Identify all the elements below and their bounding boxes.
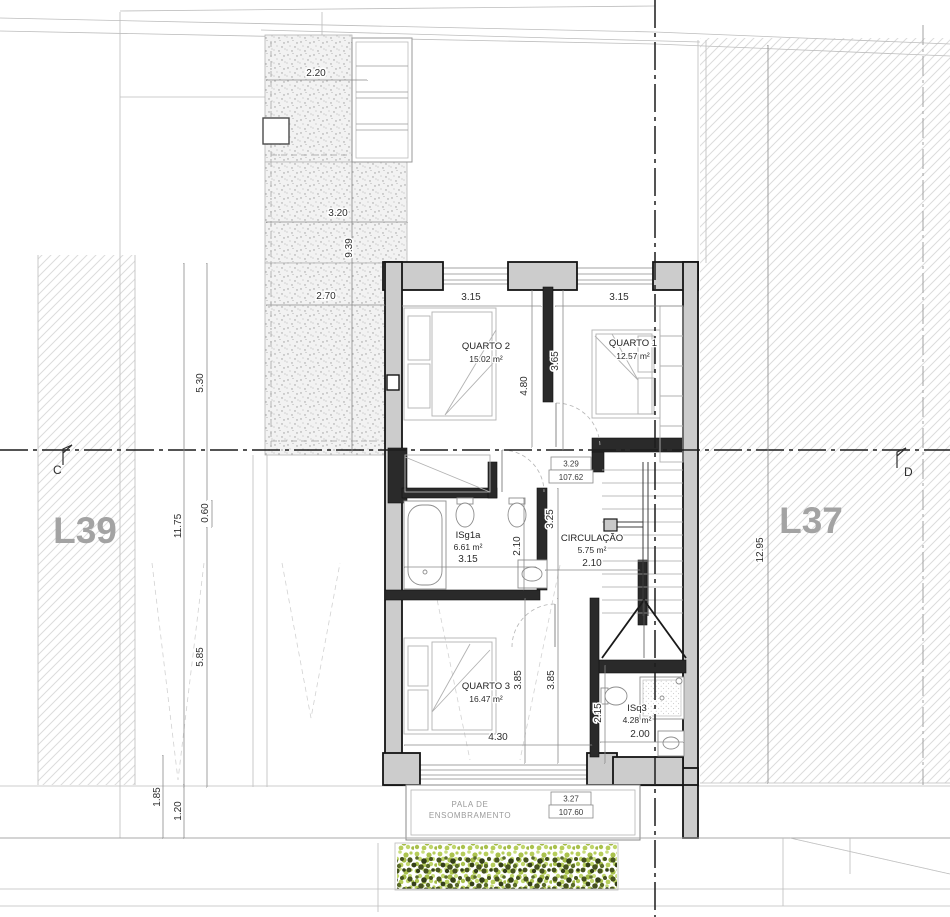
dim-isg1a-depth: 2.10 (512, 536, 523, 556)
dim-quarto2-depth: 4.80 (519, 376, 530, 396)
dim-quarto3-depth-right: 3.85 (546, 670, 557, 690)
canopy-label-line1: PALA DE (452, 800, 489, 809)
neighbor-lot-right-hatch (700, 38, 950, 783)
room-label-isq3: ISq3 (627, 703, 647, 714)
dim-rear-setback-b: 1.20 (173, 801, 184, 821)
canopy-label-line2: ENSOMBRAMENTO (429, 811, 511, 820)
dim-quarto3-width: 4.30 (488, 732, 508, 743)
dim-quarto3-depth-left: 3.85 (513, 670, 524, 690)
room-area-quarto2: 15.02 m² (469, 354, 503, 364)
lot-label-right: L37 (779, 500, 843, 541)
exterior-stair (352, 38, 412, 162)
room-label-quarto1: QUARTO 1 (609, 338, 657, 349)
patio-planter-box (263, 118, 289, 144)
lot-label-left: L39 (53, 510, 117, 551)
room-label-circulacao: CIRCULAÇÃO (561, 533, 623, 544)
dim-left-lot-depth: 11.75 (173, 513, 184, 538)
section-marker-c: C (53, 463, 62, 477)
dim-patio-bottom-width: 2.70 (316, 291, 336, 302)
dim-isq3-depth: 2.15 (593, 703, 604, 723)
room-area-quarto1: 12.57 m² (616, 351, 650, 361)
dim-rear-setback-a: 1.85 (152, 787, 163, 807)
bed-quarto2 (404, 308, 496, 420)
room-area-quarto3: 16.47 m² (469, 694, 503, 704)
level-upper-relative: 3.29 (563, 460, 579, 469)
room-label-isg1a: ISg1a (456, 530, 482, 541)
level-lower-relative: 3.27 (563, 795, 579, 804)
room-label-quarto3: QUARTO 3 (462, 681, 510, 692)
dim-patio-length: 9.39 (344, 238, 355, 258)
level-marker-upper: 3.29 107.62 (549, 457, 593, 483)
dim-right-lot-depth: 12.95 (755, 537, 766, 562)
level-marker-lower: 3.27 107.60 (549, 792, 593, 818)
level-upper-absolute: 107.62 (559, 473, 584, 482)
dim-patio-mid-width: 3.20 (328, 208, 348, 219)
floor-plan-canvas: 2.20 3.20 2.70 9.39 5.30 11.75 0.60 5.85… (0, 0, 950, 917)
section-marker-d: D (904, 465, 913, 479)
dim-quarto1-depth: 3.65 (550, 351, 561, 371)
level-lower-absolute: 107.60 (559, 808, 584, 817)
dim-quarto2-width: 3.15 (461, 292, 481, 303)
room-label-quarto2: QUARTO 2 (462, 341, 510, 352)
dim-front-yard-depth: 5.30 (195, 373, 206, 393)
dim-quarto1-width: 3.15 (609, 292, 629, 303)
dim-isg1a-width: 3.15 (458, 554, 478, 565)
room-area-isg1a: 6.61 m² (454, 542, 483, 552)
dim-circulacao-width: 2.10 (582, 558, 602, 569)
dim-isq3-width: 2.00 (630, 729, 650, 740)
hedge (395, 843, 618, 890)
dim-ledge-offset: 0.60 (200, 503, 211, 523)
room-area-isq3: 4.28 m² (623, 715, 652, 725)
dim-back-yard-depth: 5.85 (195, 647, 206, 667)
dim-patio-top-width: 2.20 (306, 68, 326, 79)
dim-hall-depth: 3.25 (545, 509, 556, 529)
room-area-circulacao: 5.75 m² (578, 545, 607, 555)
floor-plan-sheet: 2.20 3.20 2.70 9.39 5.30 11.75 0.60 5.85… (0, 0, 950, 917)
